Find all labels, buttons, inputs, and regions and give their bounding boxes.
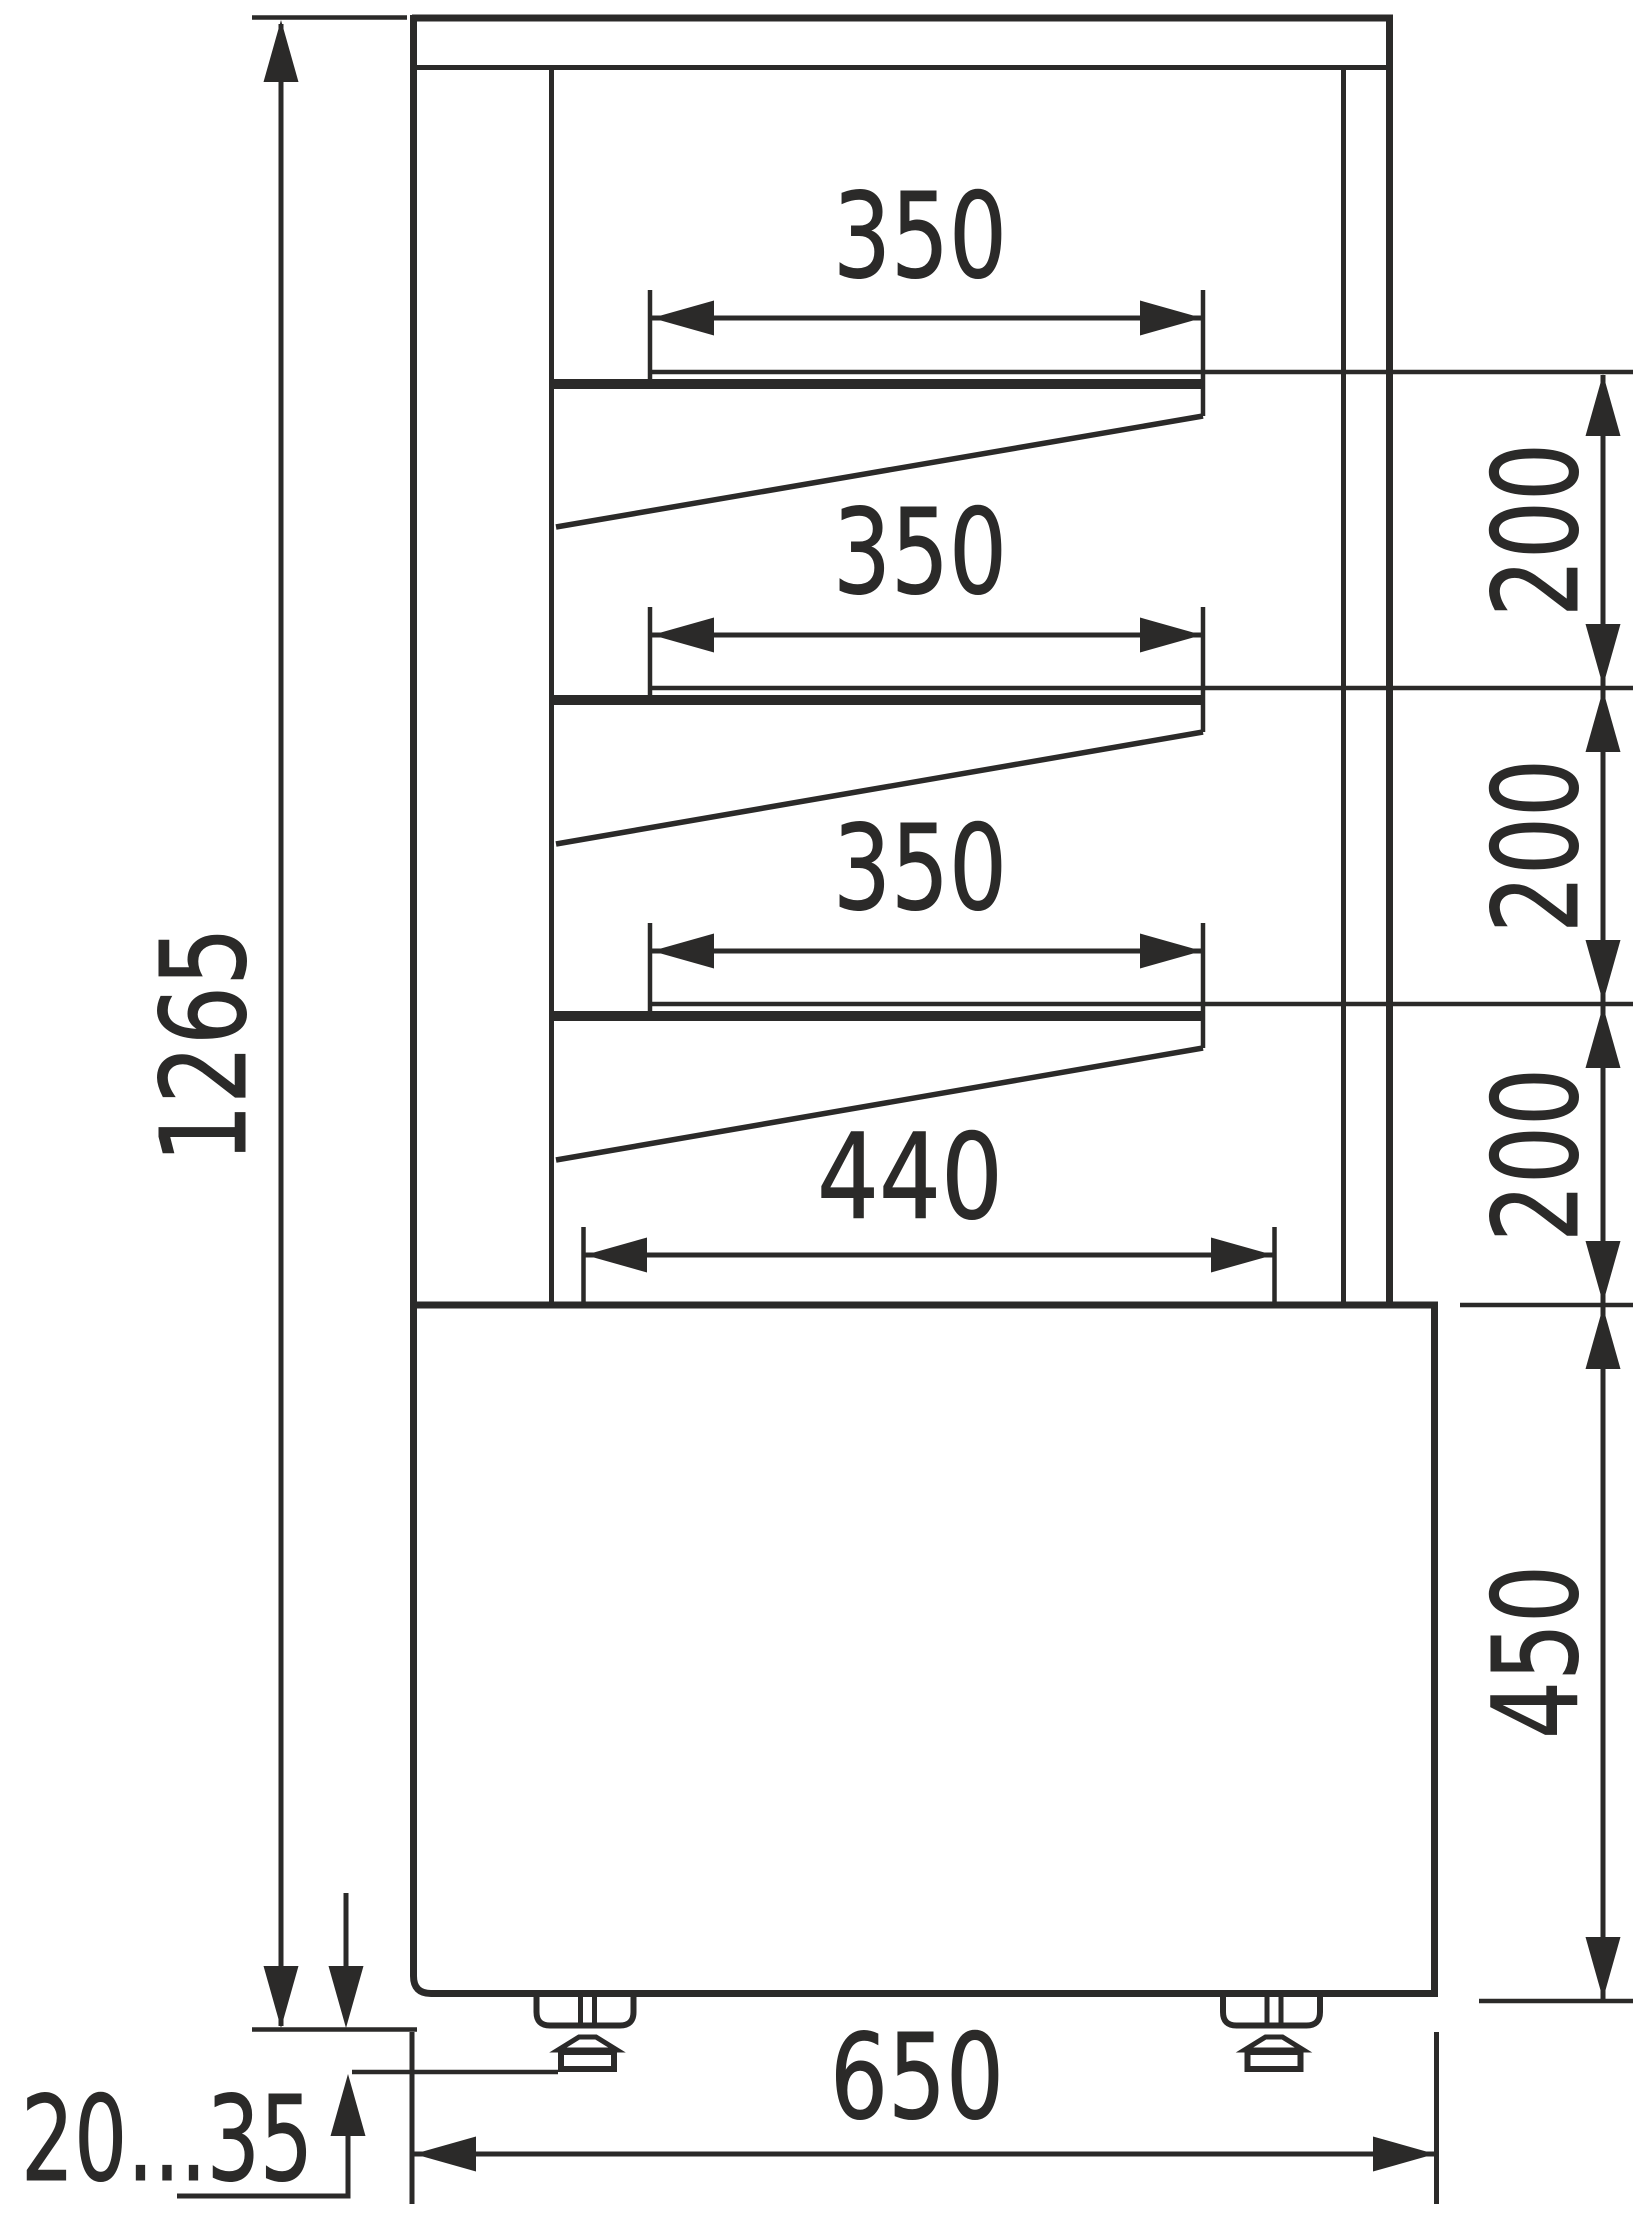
arrow-down-icon (264, 1966, 299, 2028)
dim-label-overall-height: 1265 (135, 927, 273, 1163)
arrow-up-icon (1586, 1307, 1621, 1369)
dim-foot-adjust: 20...35 (21, 1893, 558, 2208)
dim-shelf3-width: 350 (650, 799, 1202, 1013)
arrow-up-icon (1586, 1006, 1621, 1068)
dim-overall-height: 1265 (135, 18, 417, 2030)
arrow-down-icon (1586, 1241, 1621, 1303)
arrow-right-icon (1140, 618, 1202, 653)
arrow-left-icon (585, 1238, 647, 1273)
arrow-down-icon (1586, 624, 1621, 686)
arrow-right-icon (1140, 934, 1202, 969)
arrow-down-icon (1586, 940, 1621, 1002)
front-glass-wall (1344, 15, 1390, 1305)
drawing-sheet: 1265 350 350 350 440 (0, 0, 1650, 2218)
dim-label-gap1: 200 (1467, 443, 1605, 617)
left-leg (537, 1995, 634, 2069)
arrow-up-icon (1586, 374, 1621, 436)
arrow-right-icon (1140, 301, 1202, 336)
technical-drawing: 1265 350 350 350 440 (0, 0, 1650, 2218)
left-foot-shoulder (558, 2037, 617, 2050)
dim-label-shelf3-width: 350 (833, 799, 1007, 937)
base-cabinet (410, 1305, 1438, 1997)
arrow-up-icon (331, 2074, 366, 2136)
right-foot-shoulder (1245, 2037, 1304, 2050)
dim-shelf2-width: 350 (650, 483, 1202, 697)
rear-wall (414, 15, 552, 1305)
arrow-right-icon (1211, 1238, 1273, 1273)
dim-label-overall-depth: 650 (830, 2008, 1004, 2146)
right-leg (1223, 1995, 1320, 2069)
dim-label-shelf2-width: 350 (833, 483, 1007, 621)
arrow-down-icon (329, 1966, 364, 2028)
dim-label-base-height: 450 (1467, 1565, 1605, 1739)
dim-label-bottom-shelf-width: 440 (817, 1108, 1003, 1246)
left-leg-housing (537, 1995, 634, 2026)
dim-right-chain: 200 200 200 450 (1460, 374, 1633, 2001)
dim-label-gap2: 200 (1467, 759, 1605, 933)
top-canopy (412, 18, 1393, 68)
dim-label-shelf1-width: 350 (833, 167, 1007, 305)
dim-shelf1-width: 350 (650, 167, 1202, 380)
right-foot (1248, 2052, 1301, 2069)
dim-label-gap3: 200 (1467, 1068, 1605, 1242)
arrow-right-icon (1373, 2137, 1435, 2172)
cabinet-structure (410, 15, 1633, 2069)
left-foot (561, 2052, 614, 2069)
arrow-left-icon (652, 934, 714, 969)
dim-label-foot-adjust: 20...35 (21, 2070, 313, 2208)
right-leg-housing (1223, 1995, 1320, 2026)
arrow-up-icon (264, 20, 299, 82)
arrow-left-icon (652, 618, 714, 653)
arrow-down-icon (1586, 1937, 1621, 1999)
arrow-up-icon (1586, 690, 1621, 752)
arrow-left-icon (414, 2137, 476, 2172)
arrow-left-icon (652, 301, 714, 336)
